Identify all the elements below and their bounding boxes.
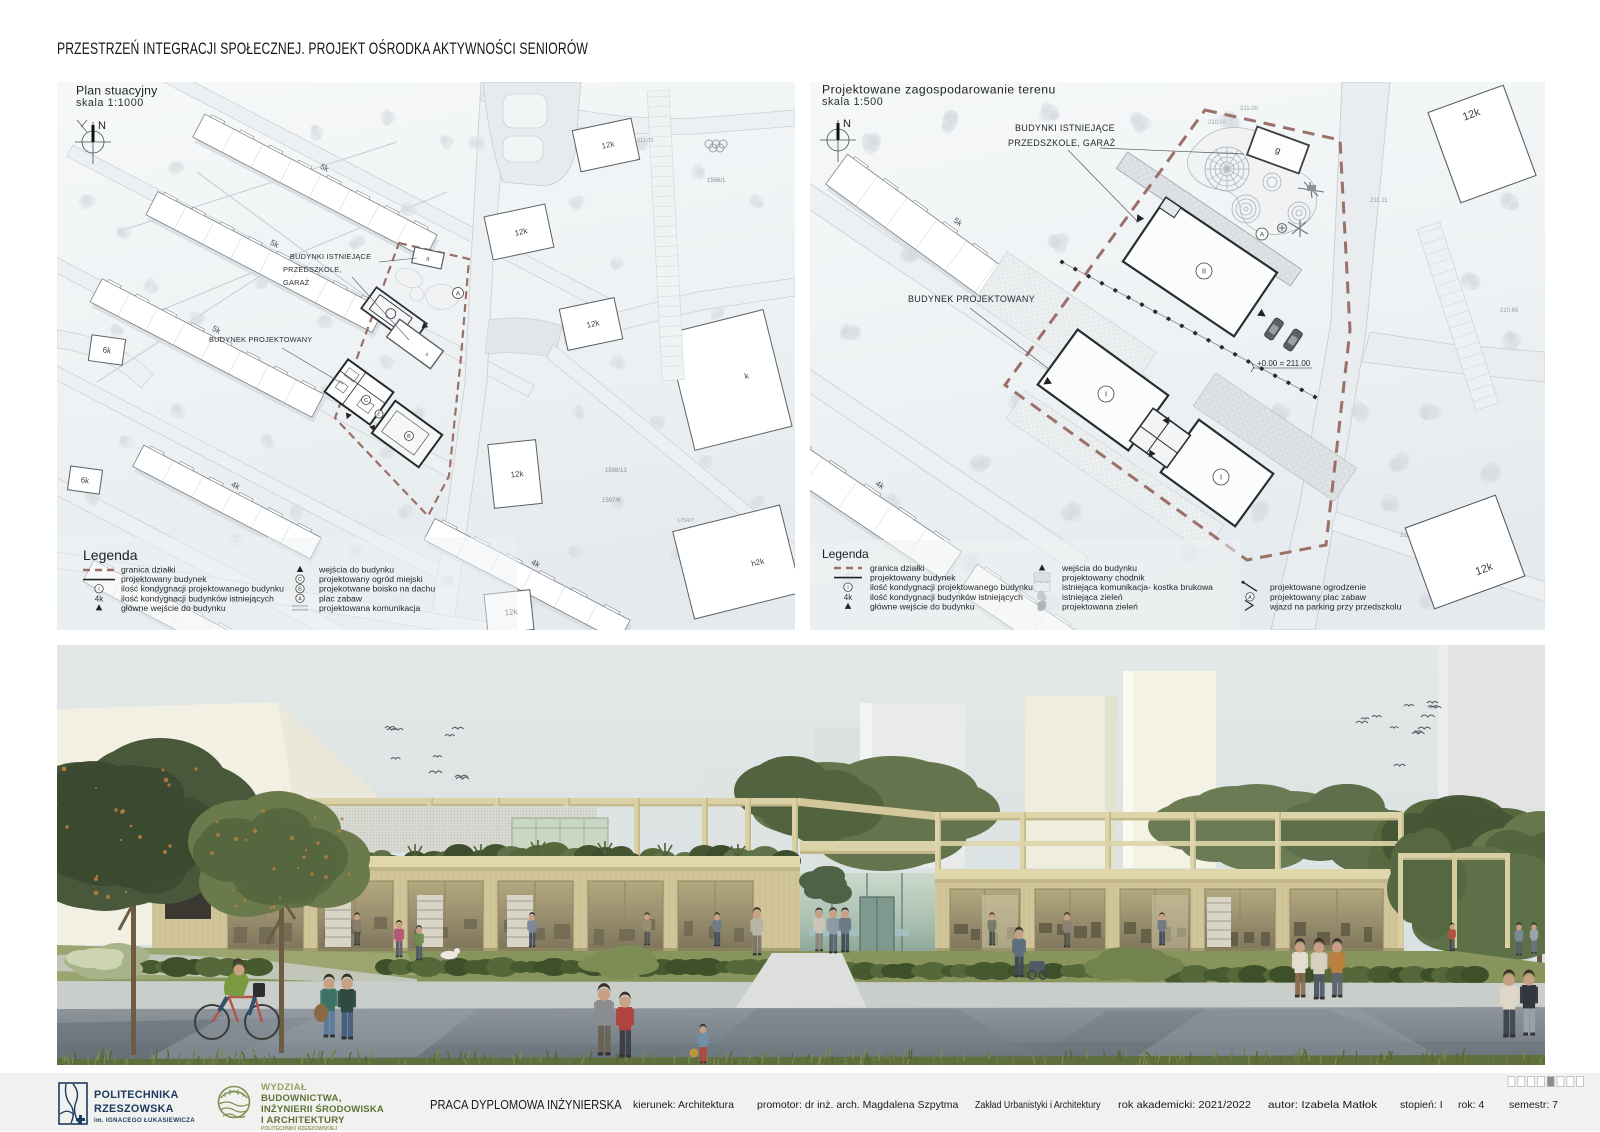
- svg-text:PRZEDSZKOLE,: PRZEDSZKOLE,: [283, 265, 342, 274]
- svg-text:projektowany budynek: projektowany budynek: [121, 574, 207, 584]
- svg-text:C: C: [298, 577, 302, 583]
- svg-text:ilość kondygnacji budynków ist: ilość kondygnacji budynków istniejących: [121, 593, 274, 603]
- svg-text:istniejąca zieleń: istniejąca zieleń: [1062, 592, 1123, 602]
- svg-text:211.05: 211.05: [637, 138, 653, 144]
- svg-text:POLITECHNIKI RZESZOWSKIEJ: POLITECHNIKI RZESZOWSKIEJ: [261, 1126, 337, 1132]
- svg-text:wejścia do budynku: wejścia do budynku: [318, 565, 394, 575]
- svg-text:1754/7: 1754/7: [677, 518, 694, 524]
- svg-text:I ARCHITEKTURY: I ARCHITEKTURY: [261, 1115, 345, 1126]
- svg-text:główne wejście do budynku: główne wejście do budynku: [870, 601, 975, 611]
- svg-text:C: C: [364, 398, 368, 404]
- svg-text:projektowany ogród miejski: projektowany ogród miejski: [319, 574, 423, 584]
- svg-text:A: A: [456, 290, 461, 297]
- svg-text:1596/1: 1596/1: [707, 178, 726, 184]
- svg-text:INŻYNIERII ŚRODOWISKA: INŻYNIERII ŚRODOWISKA: [261, 1103, 384, 1115]
- svg-text:BUDYNEK PROJEKTOWANY: BUDYNEK PROJEKTOWANY: [209, 335, 312, 344]
- svg-text:Legenda: Legenda: [83, 547, 138, 563]
- svg-text:główne wejście do budynku: główne wejście do budynku: [121, 603, 226, 613]
- svg-text:granica działki: granica działki: [121, 565, 176, 575]
- svg-text:GARAŻ: GARAŻ: [283, 278, 310, 287]
- svg-text:I: I: [1105, 390, 1107, 399]
- svg-text:wejścia do budynku: wejścia do budynku: [1061, 563, 1137, 573]
- svg-text:PRZEDSZKOLE, GARAŻ: PRZEDSZKOLE, GARAŻ: [1008, 138, 1116, 148]
- svg-text:N: N: [843, 118, 851, 130]
- svg-text:projekotwane boisko na dachu: projekotwane boisko na dachu: [319, 584, 435, 594]
- svg-text:1598/13: 1598/13: [605, 468, 627, 474]
- svg-text:I: I: [1220, 473, 1222, 482]
- svg-text:im. IGNACEGO ŁUKASIEWICZA: im. IGNACEGO ŁUKASIEWICZA: [94, 1117, 195, 1124]
- svg-text:istniejąca komunikacja- kostka: istniejąca komunikacja- kostka brukowa: [1062, 582, 1213, 592]
- svg-text:Plan stuacyjny: Plan stuacyjny: [76, 84, 158, 98]
- svg-text:granica działki: granica działki: [870, 563, 925, 573]
- svg-text:1597/8: 1597/8: [602, 498, 621, 504]
- svg-text:wjazd na parking przy przedszk: wjazd na parking przy przedszkolu: [1269, 601, 1402, 611]
- svg-text:4k: 4k: [95, 594, 104, 603]
- svg-text:Legenda: Legenda: [822, 547, 869, 561]
- svg-text:RZESZOWSKA: RZESZOWSKA: [94, 1103, 174, 1115]
- svg-text:A: A: [1260, 231, 1265, 238]
- svg-text:ilość kondygnacji budynków ist: ilość kondygnacji budynków istniejących: [870, 592, 1023, 602]
- svg-text:skala 1:500: skala 1:500: [822, 96, 883, 108]
- svg-text:projektowany chodnik: projektowany chodnik: [1062, 573, 1145, 583]
- svg-text:projektowana komunikacja: projektowana komunikacja: [319, 603, 420, 613]
- svg-text:ilość kondygnacji projektowane: ilość kondygnacji projektowanego budynku: [121, 584, 284, 594]
- svg-text:BUDYNKI ISTNIEJĄCE: BUDYNKI ISTNIEJĄCE: [290, 252, 371, 261]
- svg-text:211.11: 211.11: [1370, 198, 1388, 204]
- svg-text:A: A: [298, 596, 302, 602]
- svg-text:I: I: [378, 412, 379, 418]
- svg-text:Projektowane zagospodarowanie: Projektowane zagospodarowanie terenu: [822, 83, 1056, 97]
- svg-text:B: B: [407, 434, 411, 440]
- svg-text:BUDOWNICTWA,: BUDOWNICTWA,: [261, 1093, 342, 1104]
- svg-text:BUDYNEK PROJEKTOWANY: BUDYNEK PROJEKTOWANY: [908, 294, 1035, 304]
- svg-text:POLITECHNIKA: POLITECHNIKA: [94, 1089, 179, 1101]
- svg-text:II: II: [1202, 267, 1206, 276]
- svg-text:projektowany budynek: projektowany budynek: [870, 573, 956, 583]
- svg-text:BUDYNKI ISTNIEJĄCE: BUDYNKI ISTNIEJĄCE: [1015, 123, 1115, 133]
- svg-text:B: B: [298, 587, 302, 593]
- svg-text:projektowany plac zabaw: projektowany plac zabaw: [1270, 592, 1367, 602]
- svg-text:12k: 12k: [510, 469, 525, 479]
- svg-text:plac zabaw: plac zabaw: [319, 593, 363, 603]
- svg-text:ilość kondygnacji projektowane: ilość kondygnacji projektowanego budynku: [870, 582, 1033, 592]
- svg-text:projektowana zieleń: projektowana zieleń: [1062, 601, 1138, 611]
- svg-text:projektowane ogrodzenie: projektowane ogrodzenie: [1270, 582, 1366, 592]
- svg-text:4k: 4k: [844, 593, 853, 602]
- svg-text:211.00: 211.00: [1240, 106, 1259, 112]
- svg-text:skala 1:1000: skala 1:1000: [76, 97, 144, 109]
- svg-text:+0.00 = 211.00: +0.00 = 211.00: [1257, 359, 1311, 368]
- svg-text:210.65: 210.65: [1500, 308, 1519, 314]
- svg-text:A: A: [1248, 595, 1252, 601]
- svg-text:N: N: [98, 120, 106, 132]
